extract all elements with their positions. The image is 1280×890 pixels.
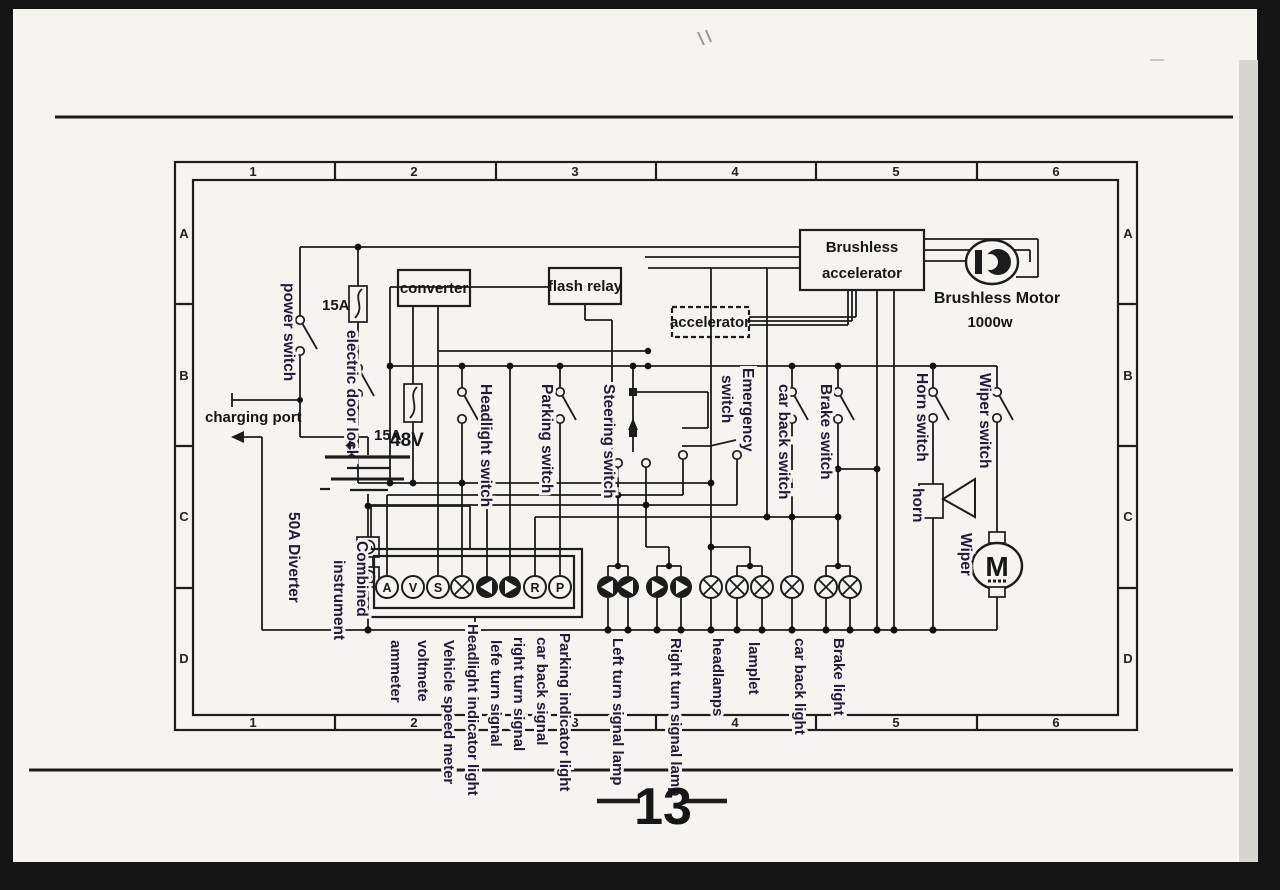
lamp-row (597, 576, 861, 598)
emergency-switch-label-word1: Emergency (739, 368, 756, 452)
label-car-back-light: car back light (791, 638, 808, 735)
car-back-lamp-icon (781, 576, 803, 598)
brushless-accelerator-box: Brushless accelerator (800, 230, 924, 290)
brushless-accelerator-label-1: Brushless (826, 239, 899, 256)
accelerator-box: accelerator (670, 307, 750, 337)
flash-relay-label: flash relay (548, 278, 623, 295)
grid-col-top-1: 1 (249, 164, 256, 179)
parking-switch: Parking switch (538, 384, 576, 493)
label-car-back-signal: car back signal (533, 637, 550, 745)
power-switch: power switch (280, 283, 317, 381)
diverter-label: 50A Diverter (285, 512, 302, 603)
brake-switch: Brake switch (817, 384, 854, 480)
wiring-diagram: 1 2 3 4 5 6 1 2 3 4 5 6 A B C D A B C D (0, 0, 1280, 890)
gauge-speedometer: S (434, 581, 442, 595)
grid-row-right-a: A (1123, 226, 1133, 241)
steering-switch-label: Steering switch (600, 384, 617, 499)
label-vehicle-speed-meter: Vehicle speed meter (440, 640, 457, 784)
brushless-motor-name: Brushless Motor (934, 290, 1060, 307)
charging-port-label: charging port (205, 409, 302, 426)
combined-instrument-label-1: Combined (353, 541, 370, 617)
grid-col-bottom-6: 6 (1052, 715, 1059, 730)
grid-row-right-c: C (1123, 509, 1133, 524)
left-turn-indicator-icon (476, 576, 498, 598)
grid-col-bottom-5: 5 (892, 715, 899, 730)
main-fuse-label: 15A (322, 297, 350, 314)
gauge-ammeter: A (382, 581, 391, 595)
brushless-motor-power: 1000w (967, 314, 1012, 331)
converter-box: converter (398, 270, 470, 306)
headlight-switch: Headlight switch (458, 384, 494, 507)
wiper-motor: M Wiper (957, 532, 1022, 597)
converter-label: converter (400, 280, 469, 297)
battery-48v: + 48V (320, 430, 424, 490)
horn-device-label: horn (909, 488, 926, 522)
grid-col-top-2: 2 (410, 164, 417, 179)
car-back-switch: car back switch (775, 384, 808, 499)
wiper-motor-letter: M (985, 551, 1008, 582)
secondary-fuse-label: 15A (374, 427, 402, 444)
grid-col-top-4: 4 (731, 164, 739, 179)
flash-relay-box: flash relay (548, 268, 623, 304)
headlight-indicator-lamp-icon (451, 576, 473, 598)
page-number: 13 (597, 778, 727, 836)
label-right-turn-signal-indicator: right turn signal (510, 637, 527, 751)
combined-instrument-label-2: instrument (330, 560, 347, 640)
wiper-switch: Wiper switch (976, 373, 1013, 468)
grid-col-top-5: 5 (892, 164, 899, 179)
grid-col-bottom-4: 4 (731, 715, 739, 730)
left-turn-signal-lamps (597, 576, 639, 598)
right-turn-signal-lamps (646, 576, 692, 598)
grid-row-right-b: B (1123, 368, 1132, 383)
brake-switch-label: Brake switch (817, 384, 834, 480)
battery-plus-sign: + (345, 436, 355, 455)
brake-lamp-icons (815, 576, 861, 598)
wiper-device-label: Wiper (957, 533, 974, 576)
horn-switch: Horn switch (913, 373, 949, 462)
parking-switch-label: Parking switch (538, 384, 555, 493)
grid-row-left-a: A (179, 226, 189, 241)
page-rules (29, 117, 1233, 770)
grid-row-left-d: D (179, 651, 188, 666)
grid-col-bottom-1: 1 (249, 715, 256, 730)
headlamp-lamp-icon (700, 576, 722, 598)
gauge-voltmeter: V (409, 581, 418, 595)
gauge-parking: P (556, 581, 564, 595)
horn-device: horn (909, 479, 975, 522)
brushless-accelerator-label-2: accelerator (822, 265, 902, 282)
label-lamplet: lamplet (745, 642, 762, 695)
label-right-turn-signal-lamp: Right turn signal lamp (667, 638, 684, 796)
grid-row-right-d: D (1123, 651, 1132, 666)
steering-switch: Steering switch (600, 384, 650, 499)
wiper-switch-label: Wiper switch (976, 373, 993, 468)
label-parking-indicator-light: Parking indicator light (556, 633, 573, 791)
grid-row-left-b: B (179, 368, 188, 383)
label-voltmeter: voltmete (414, 640, 431, 702)
grid-col-bottom-2: 2 (410, 715, 417, 730)
scanned-wiring-diagram-page: 1 2 3 4 5 6 1 2 3 4 5 6 A B C D A B C D (0, 0, 1280, 890)
grid-row-left-c: C (179, 509, 189, 524)
label-headlamps: headlamps (709, 638, 726, 716)
emergency-switch-label-word2: switch (718, 375, 735, 423)
main-fuse: 15A (322, 286, 367, 322)
brushless-motor: Brushless Motor 1000w (934, 240, 1060, 331)
grid-col-top-6: 6 (1052, 164, 1059, 179)
grid-col-top-3: 3 (571, 164, 578, 179)
label-headlight-indicator-light: Headlight indicator light (464, 624, 481, 796)
accelerator-label: accelerator (670, 314, 750, 331)
right-turn-indicator-icon (499, 576, 521, 598)
label-left-turn-signal-lamp: Left turn signal lamp (609, 638, 626, 786)
page-number-text: 13 (634, 778, 692, 836)
horn-switch-label: Horn switch (913, 373, 930, 462)
label-left-turn-signal-indicator: lefe turn signal (487, 640, 504, 747)
power-switch-label: power switch (280, 283, 297, 381)
label-ammeter: ammeter (387, 640, 404, 703)
car-back-switch-label: car back switch (775, 384, 792, 499)
lamplet-lamp-icons (726, 576, 773, 598)
headlight-switch-label: Headlight switch (477, 384, 494, 507)
label-brake-light: Brake light (830, 638, 847, 716)
gauge-reverse: R (530, 581, 539, 595)
